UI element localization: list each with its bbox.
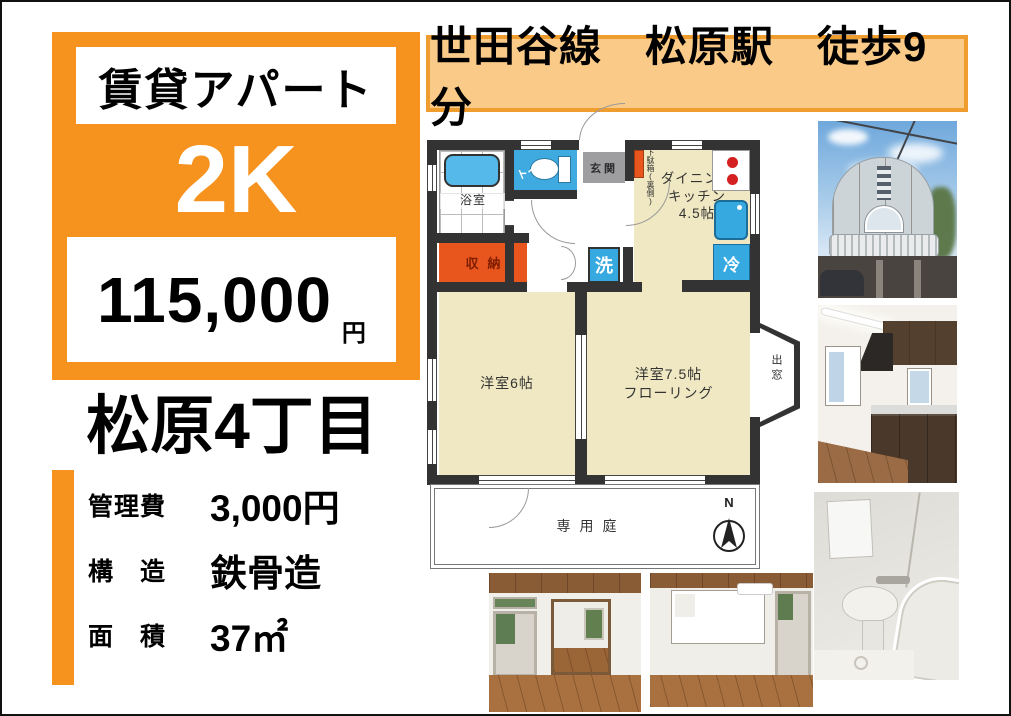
private-garden: 専用庭 N <box>430 484 760 569</box>
sink-basin <box>842 586 898 622</box>
faucet-icon <box>737 205 742 210</box>
small-window-shape <box>908 369 931 405</box>
bathroom-label: 浴室 <box>440 193 506 209</box>
bathroom: 浴室 <box>439 150 505 234</box>
washing-machine: 洗 <box>588 247 620 283</box>
detail-label: 管理費 <box>88 487 198 523</box>
toilet-tank <box>558 156 571 183</box>
upper-cabinets <box>883 321 957 365</box>
photo-kitchen <box>818 305 957 483</box>
layout-type-label: 2K <box>52 124 420 236</box>
countertop <box>871 405 957 414</box>
arch-window <box>865 206 903 232</box>
balcony-railing <box>829 234 939 258</box>
window-left-bath <box>427 165 437 191</box>
drain-shape <box>854 656 868 670</box>
storage-label: 収納 <box>465 253 509 272</box>
price-box: 115,000 円 <box>67 237 396 362</box>
car-shape <box>820 270 864 296</box>
ground-floor-shadow <box>818 256 957 298</box>
photo-building-exterior <box>818 121 957 298</box>
mirror-shape <box>827 499 874 559</box>
burner-icon <box>727 157 738 168</box>
photo-interior-room-1 <box>489 573 641 712</box>
washer-label: 洗 <box>595 252 613 278</box>
window-top-2 <box>672 140 702 150</box>
inner-window <box>584 608 604 640</box>
detail-row-area: 面 積 37㎡ <box>88 610 408 660</box>
details-accent-bar <box>52 470 74 685</box>
tall-window <box>775 591 811 679</box>
floorplan: 浴室 収納 トイレ 玄関 下駄箱(裏側) ダイニング キッチン 4.5帖 <box>427 120 813 577</box>
pillar-shape <box>914 260 921 298</box>
detail-value: 鉄骨造 <box>210 543 321 597</box>
window-top-1 <box>521 140 551 150</box>
sliding-door <box>575 335 587 439</box>
entrance-opening <box>579 140 625 150</box>
entrance-area: 玄関 <box>583 152 625 183</box>
wood-ceiling <box>489 573 641 593</box>
fridge-label: 冷 <box>723 251 740 276</box>
wall <box>623 247 633 287</box>
compass-n-label: N <box>709 495 749 510</box>
toilet-room: トイレ <box>514 150 577 190</box>
price-value: 115,000 <box>97 263 332 337</box>
room2-label: 洋室7.5帖 フローリング <box>624 365 714 401</box>
price-unit: 円 <box>342 313 366 348</box>
faucet-shape <box>876 576 910 584</box>
large-window <box>672 591 764 643</box>
address-title: 松原4丁目 <box>42 378 422 464</box>
western-room-7-5: 洋室7.5帖 フローリング <box>587 292 750 475</box>
range-hood <box>857 333 893 371</box>
room1-opening <box>527 282 567 292</box>
window-left-room1b <box>427 430 437 464</box>
station-banner: 世田谷線 松原駅 徒歩9分 <box>426 35 968 112</box>
transom-window <box>493 597 537 609</box>
room1-label: 洋室6帖 <box>480 374 534 392</box>
bathroom-door-opening <box>505 200 514 226</box>
detail-label: 構 造 <box>88 552 198 588</box>
detail-value: 37㎡ <box>210 608 288 662</box>
wall <box>514 190 577 199</box>
wood-ceiling <box>650 573 813 588</box>
detail-value: 3,000円 <box>210 478 340 532</box>
compass-icon <box>709 510 749 556</box>
detail-row-management-fee: 管理費 3,000円 <box>88 480 408 530</box>
wall <box>625 150 634 181</box>
garden-label: 専用庭 <box>521 513 661 539</box>
garden-window <box>493 611 537 677</box>
burner-icon <box>727 174 738 185</box>
vent-windows <box>877 166 891 200</box>
entrance-label: 玄関 <box>590 160 618 176</box>
photo-interior-room-2 <box>650 573 813 707</box>
inner-floor <box>554 648 608 672</box>
air-conditioner <box>737 583 773 595</box>
flyer-page: 賃貸アパート 2K 115,000 円 松原4丁目 管理費 3,000円 構 造… <box>0 0 1011 716</box>
wood-floor <box>489 675 641 712</box>
bay-window-label: 出窓 <box>768 354 784 400</box>
property-type-label: 賃貸アパート <box>76 47 396 124</box>
cloud-shape <box>828 129 868 145</box>
shower-hose <box>905 492 920 587</box>
window-shape <box>826 347 860 405</box>
compass: N <box>709 495 749 561</box>
window-right-kitchen <box>750 194 760 234</box>
station-banner-text: 世田谷線 松原駅 徒歩9分 <box>430 13 964 135</box>
detail-row-structure: 構 造 鉄骨造 <box>88 545 408 595</box>
bathtub <box>444 154 500 187</box>
wall <box>437 233 529 243</box>
bay-window-opening <box>750 333 760 417</box>
stove <box>712 150 750 191</box>
kitchen-sink <box>714 200 748 240</box>
shoe-box <box>634 150 644 178</box>
window-left-room1a <box>427 359 437 401</box>
wood-floor <box>650 675 813 707</box>
doorway-to-next-room <box>551 599 611 675</box>
ceiling-light <box>820 307 890 332</box>
detail-label: 面 積 <box>88 617 198 653</box>
refrigerator: 冷 <box>713 244 750 282</box>
room2-opening <box>642 282 682 292</box>
photo-bathroom <box>814 492 959 680</box>
wall <box>437 282 750 292</box>
pillar-shape <box>876 260 883 298</box>
western-room-6: 洋室6帖 <box>439 292 575 475</box>
